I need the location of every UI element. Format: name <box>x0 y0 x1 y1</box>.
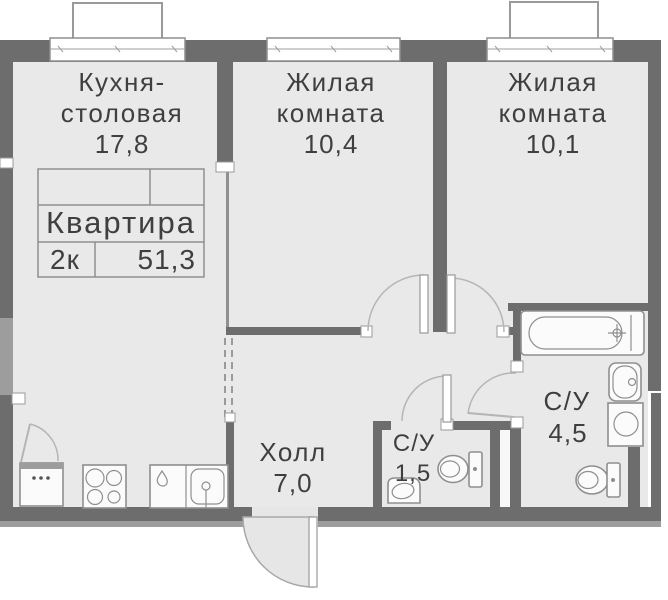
washing-machine <box>608 403 643 446</box>
svg-text:Холл: Холл <box>259 437 326 467</box>
stove <box>83 465 126 508</box>
toilet-large-bathroom <box>576 463 620 497</box>
window-kitchen <box>50 38 185 61</box>
svg-text:10,4: 10,4 <box>304 129 359 159</box>
total-area: 51,3 <box>138 244 197 275</box>
entrance-door-swing <box>243 517 313 587</box>
svg-text:столовая: столовая <box>61 98 184 128</box>
floor-plan: Квартира 2к 51,3 Кухня- столовая 17,8 Жи… <box>0 0 668 600</box>
svg-text:17,8: 17,8 <box>95 129 150 159</box>
bathtub <box>521 311 644 355</box>
fridge <box>20 463 63 506</box>
entrance-door <box>243 517 317 587</box>
svg-text:10,1: 10,1 <box>526 129 581 159</box>
svg-text:комната: комната <box>277 98 386 128</box>
apartment-title: Квартира <box>46 205 196 240</box>
wall-shadow-strip <box>0 521 252 527</box>
balcony-left <box>73 3 162 40</box>
svg-text:Жилая: Жилая <box>286 67 376 97</box>
svg-text:С/У: С/У <box>393 430 435 457</box>
svg-text:Кухня-: Кухня- <box>78 67 165 97</box>
shaft <box>500 430 510 507</box>
svg-text:4,5: 4,5 <box>548 418 587 448</box>
svg-text:Жилая: Жилая <box>508 67 598 97</box>
windows <box>50 38 613 61</box>
svg-text:7,0: 7,0 <box>273 468 312 498</box>
rooms-count: 2к <box>50 244 80 275</box>
bathroom-sink <box>609 363 641 401</box>
window-living2 <box>487 38 613 61</box>
window-living1 <box>267 38 400 61</box>
balcony-right <box>510 2 598 40</box>
svg-text:С/У: С/У <box>543 386 590 416</box>
balconies <box>73 2 598 40</box>
kitchen-fixtures <box>20 463 228 508</box>
svg-text:1,5: 1,5 <box>395 460 431 487</box>
light-partition <box>226 172 229 327</box>
kitchen-sink <box>150 465 228 508</box>
svg-text:комната: комната <box>499 98 608 128</box>
